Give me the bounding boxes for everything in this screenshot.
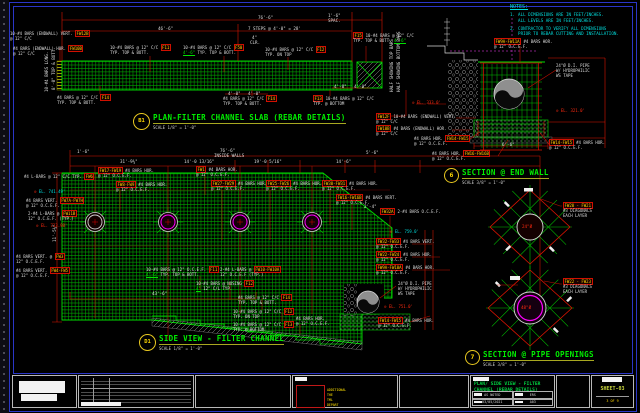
callout-label: 10-#4 BARS @ 12" O.C.E.F. F114'-6" TYP. …	[146, 267, 219, 277]
pe-stamp-box	[296, 385, 325, 408]
redacted-project-no	[473, 377, 489, 381]
redacted-stamp-note	[295, 377, 307, 381]
end-wall-section-title: SECTION @ END WALL	[462, 168, 549, 179]
callout-label: FW22 - FW23#3 DIAGONALSEACH LAYER	[563, 279, 593, 295]
plan-view-title: PLAN-FILTER CHANNEL SLAB (REBAR DETAILS)	[153, 113, 346, 124]
dimension-text: 46'-6"	[158, 26, 173, 31]
callout-label: #4 BARS HOR. FW14-FW15@ 12" O.C.E.F.	[414, 136, 470, 146]
dimension-text: 1'-6"	[77, 149, 90, 154]
dimension-text: 76'-6"	[258, 15, 273, 20]
callout-label: 10-#4 BARS @ 12" C/C F504'-6" TYP. TOP &…	[183, 45, 244, 55]
notes-title: NOTES:	[510, 4, 636, 10]
callout-label: FW9A-FW11A #4 BARS HOR. @ 12" O.C.E.F.	[494, 39, 552, 49]
dimension-text: 14'-0 13/16"	[184, 159, 214, 164]
detail-bubble-b1: B1	[133, 113, 150, 130]
scale-field: AS NOTED	[472, 391, 513, 399]
callout-label: FW17-FW19 #4 BARS HOR. @ 12" O.C.E.F.	[98, 168, 154, 178]
stamp-note-line: DEPART	[327, 403, 339, 407]
callout-label: FW30-FW31 #4 BARS HOR. @ 12" O.C.E.F.	[322, 181, 378, 191]
dimension-text: 2'-4"	[364, 204, 377, 209]
callout-label: #4 L-BARS @ 12" C/C TYP. FW6	[24, 174, 94, 179]
stamp-note-line: TML	[327, 398, 333, 402]
callout-label: 10-#4 BARS @ 12" C/C F11TYP. TOP & BOTT.	[110, 45, 171, 55]
callout-label: ⊙ EL. 333.0'	[412, 100, 441, 105]
callout-label: #4 BARS @ 12" C/C F14TYP. TOP & BOTT.	[57, 95, 111, 105]
view-title-end-wall: 6 SECTION @ END WALL SCALE 3/8" = 1'-0"	[444, 168, 549, 185]
dimension-text: SPAC.	[328, 18, 341, 23]
note-item: 2. CONTRACTOR TO VERIFY ALL DIMENSIONSPR…	[510, 26, 636, 37]
sheet-count: 3 OF 9	[592, 399, 633, 403]
sheet-number: SHEET-03	[592, 386, 633, 392]
callout-label: F15 10-#4 BARS @ 12" C/CTYP. TOP & BOTT.…	[353, 33, 414, 43]
section-pipe-openings	[486, 185, 574, 350]
dimension-text: HALF SHOWING BOTTOM BARS	[396, 31, 401, 92]
titleblock-sheet-cell: SHEET-03 3 OF 9	[591, 375, 634, 408]
callout-label: #4 BARS @ 12" C/C F14TYP. TOP & BOTT.	[238, 295, 292, 305]
titleblock-empty-cell	[195, 375, 291, 408]
titleblock-small-cell	[556, 375, 590, 408]
drawn-by-field: ERS	[513, 391, 554, 399]
redacted-address	[21, 394, 57, 401]
view-title-pipe-openings: 7 SECTION @ PIPE OPENINGS SCALE 3/8" = 1…	[465, 350, 594, 367]
callout-label: #4 BARS @ 12" C/C F14TYP. TOP & BOTT.	[223, 96, 277, 106]
title-block: ADDITIONAL THE TML DEPART PLAN/ SIDE VIE…	[12, 374, 634, 410]
callout-label: ⊙ EL. 751.0'	[384, 304, 413, 309]
view-title-side: D1 SIDE VIEW - FILTER CHANNEL SCALE 1/8"…	[139, 334, 284, 351]
date-field: 03/05/2021	[472, 399, 513, 407]
callout-label: 24"Ø D.I. PIPEW/ HYDROPHILICWS TAPE	[398, 281, 432, 297]
callout-label: 10-#4 BARS @ 12" C/C F12TYP. ON TOP	[233, 309, 294, 319]
pipe-openings-section-title: SECTION @ PIPE OPENINGS	[483, 350, 594, 361]
dimension-text: CLR.	[250, 40, 260, 45]
detail-bubble-d1: D1	[139, 334, 156, 351]
callout-label: ⊙ EL. 741.49'	[34, 189, 65, 194]
stamp-note-line: ADDITIONAL	[327, 388, 346, 392]
dimension-text: 6'-6"	[502, 142, 515, 147]
callout-label: FW25-FW26 #4 BARS HOR. @ 12" O.C.E.F.	[266, 181, 322, 191]
callout-label: #4 BARS VERT. FW4-FW5@ 12" O.C.E.F.	[16, 268, 70, 278]
callout-label: 10-#4 BARS @ 12" C/C F12TYP. ON TOP	[265, 47, 326, 57]
callout-label: FW22-FW24 #4 BARS HOR. @ 12" O.C.E.F.	[376, 252, 432, 262]
plan-view-scale: SCALE 1/8" = 1'-0"	[153, 125, 346, 130]
callout-label: #4 BARS HOR. FW16-FW16B@ 12" O.C.E.F.	[432, 151, 490, 161]
dimension-text: 24"Ø	[522, 224, 532, 229]
redacted-logo	[19, 381, 65, 393]
titleblock-empty-cell-2	[399, 375, 469, 408]
dimension-text: 4'-0"	[248, 91, 261, 96]
dimension-text: HALF SHOWING TOP BARS	[389, 39, 394, 92]
titleblock-stamp-cell: ADDITIONAL THE TML DEPART	[292, 375, 398, 408]
redacted-sheet-note	[602, 377, 622, 382]
callout-label: FW9A-FW10A #4 BARS HOR. @ 12" O.C.E.F.	[376, 265, 434, 275]
side-view-title: SIDE VIEW - FILTER CHANNEL	[159, 334, 284, 345]
callout-label: FW14-FW15 #4 BARS HOR. @ 12" O.C.E.F.	[549, 140, 605, 150]
callout-label: #4 BARS VERT. @ FW312" O.C.E.F.	[16, 254, 65, 264]
dwg-no-field: A03	[513, 399, 554, 407]
callout-label: FW27-FW29 #4 BARS HOR. @ 12" O.C.E.F.	[211, 181, 267, 191]
view-title-plan: B1 PLAN-FILTER CHANNEL SLAB (REBAR DETAI…	[133, 113, 346, 130]
dimension-text: 11'-5¾"	[52, 224, 57, 242]
callout-label: 10-#4 BARS (ENDWALL) VERT. FW12B @ 12" C…	[10, 31, 90, 41]
dimension-text: 8'-0" TOP & BOTT.	[51, 47, 56, 90]
titleblock-fields: AS NOTED ERS 03/05/2021 A03	[472, 391, 553, 406]
dimension-text: 14'-6"	[336, 159, 351, 164]
dimension-text: 4'-0"	[334, 84, 347, 89]
titleblock-title-cell: PLAN/ SIDE VIEW - FILTER CHANNEL (REBAR …	[470, 375, 555, 408]
section-bubble-6: 6	[444, 168, 459, 183]
dimension-text: 10-#4 BARS LONG.	[44, 52, 49, 92]
callout-label: 10-#4 BARS @ 12" C/C F13TYP. @ BOTTOM	[233, 322, 294, 332]
section-bubble-7: 7	[465, 350, 480, 365]
callout-label: 10-#4 BARS @ NOSING F124" 12" C/L TYP.	[196, 281, 254, 291]
callout-label: FW12F 10-#4 BARS (ENDWALL) VERT. @ 12" C…	[376, 114, 456, 124]
callout-label: ⊙ EL. 321.0'	[556, 108, 585, 113]
dimension-text: 43'-6"	[152, 291, 167, 296]
callout-label: 24"Ø D.I. PIPEW/ HYDROPHILICWS TAPE	[556, 63, 590, 79]
note-item: 1. ALL DIMENSIONS ARE IN FEET/INCHES.ALL…	[510, 12, 636, 23]
callout-label: FW1 #4 BARS HOR. @ 12" O.C.E.F.	[196, 167, 238, 177]
notes-block: NOTES: 1. ALL DIMENSIONS ARE IN FEET/INC…	[510, 4, 636, 39]
dimension-text: INSIDE WALLS	[214, 153, 244, 158]
titleblock-revision-cell	[78, 375, 194, 408]
cad-drawing-sheet: 10-#4 BARS (ENDWALL) VERT. FW12B @ 12" C…	[0, 0, 640, 413]
callout-label: #4 BARS HOR.@ 12" O.C.E.F.	[296, 316, 330, 326]
dimension-text: 4'-0"	[228, 91, 241, 96]
callout-label: 2-#4 L-BARS @ FW11B12" O.C.E.F. (TYP.)	[28, 211, 77, 221]
callout-label: #4 BARS VERT. FW7A-FW7H@ 12" O.C.E.F.	[26, 198, 84, 208]
callout-label: FW32A 2-#4 BARS O.C.E.F.	[380, 209, 441, 214]
callout-label: FW20 - FW21#3 DIAGONALSEACH LAYER	[563, 203, 593, 219]
side-view-scale: SCALE 1/8" = 1'-0"	[159, 346, 284, 351]
revision-table-lines	[81, 378, 191, 405]
stamp-note-line: THE	[327, 393, 333, 397]
dimension-text: 19'-0 5/16"	[254, 159, 282, 164]
titleblock-logo-cell	[12, 375, 77, 408]
dimension-text: 31'-9¾"	[120, 159, 138, 164]
callout-label: F13 10-#4 BARS @ 12" C/CTYP. @ BOTTOM	[313, 96, 374, 106]
callout-label: FW10B #4 BARS (ENDWALL) HOR. @ 12" C/C	[376, 126, 446, 136]
pipe-openings-section-scale: SCALE 3/8" = 1'-0"	[483, 362, 594, 367]
dimension-text: 5'-6"	[366, 150, 379, 155]
callout-label: FW8-FW9 #4 BARS HOR. @ 12" O.C.E.F.	[116, 182, 167, 192]
dimension-text: 4'-0"	[354, 84, 367, 89]
callout-label: ⊙ EL. 759.0'	[390, 229, 419, 234]
callout-label: 2-#4 L-BARS @ FW10-FW10A12" O.C.E.F (TYP…	[220, 267, 281, 277]
dimension-text: 7 STEPS @ 4'-0" = 28'	[248, 26, 301, 31]
redacted-revision-entry	[81, 402, 121, 406]
callout-label: FW14-FW15 #4 BARS HOR. @ 12" O.C.E.F.	[378, 318, 434, 328]
end-wall-section-scale: SCALE 3/8" = 1'-0"	[462, 180, 549, 185]
dimension-text: 48"Ø	[521, 305, 531, 310]
callout-label: FW32-FW33 #4 BARS VERT. @ 12" O.C.E.F.	[376, 239, 434, 249]
